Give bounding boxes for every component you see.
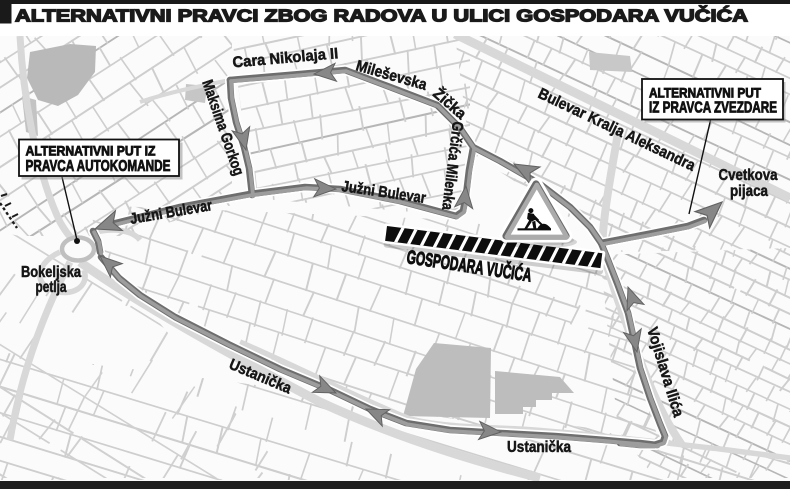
svg-text:Ustanička: Ustanička [507,439,571,456]
svg-text:ALTERNATIVNI PUT IZ: ALTERNATIVNI PUT IZ [26,144,156,159]
svg-text:ALTERNATIVNI PUT: ALTERNATIVNI PUT [649,85,761,100]
svg-text:pijaca: pijaca [730,183,768,200]
svg-text:ALTERNATIVNI PRAVCI ZBOG RADOV: ALTERNATIVNI PRAVCI ZBOG RADOVA U ULICI … [15,4,748,25]
svg-text:IZ PRAVCA ZVEZDARE: IZ PRAVCA ZVEZDARE [649,100,777,117]
svg-text:Cvetkova: Cvetkova [719,167,778,184]
svg-text:petlja: petlja [36,279,67,296]
svg-text:PRAVCA AUTOKOMANDE: PRAVCA AUTOKOMANDE [26,158,171,175]
